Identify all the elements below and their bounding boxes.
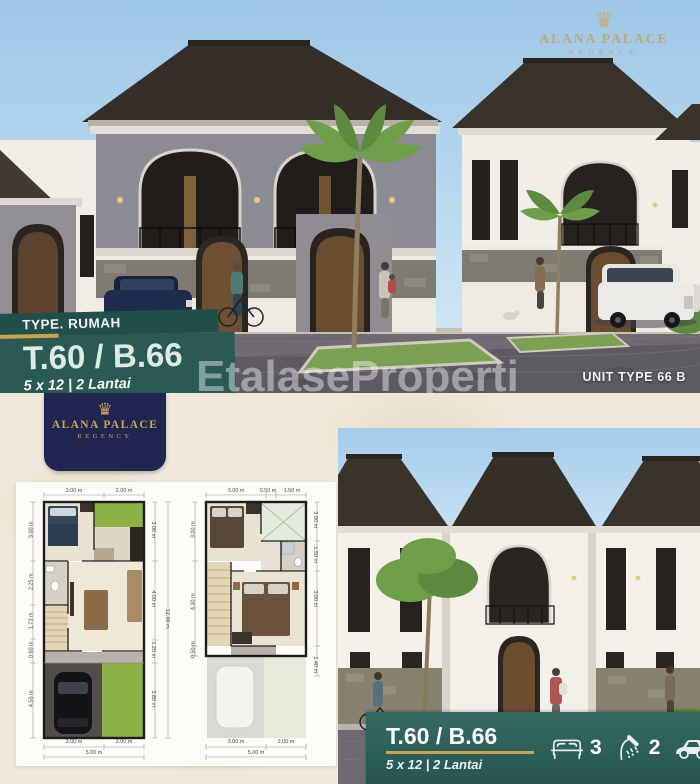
bedrooms-count: 3 [590,736,602,760]
gold-accent-line [386,751,534,754]
house-far-left [0,140,100,332]
dim-label: 3.00 m [62,740,86,746]
dim-label: 3.00 m [224,489,248,495]
dim-label: 0.60 m [29,638,35,662]
bed-icon [550,734,584,762]
balcony-arch [488,546,550,624]
crown-icon: ♛ [524,10,684,31]
dim-label: 3.00 m [311,587,317,611]
dim-label: 3.00 m [191,518,197,542]
floor-plan-upper: 3.00 m 0.50 m 1.50 m 3.00 m 4.30 m 0.50 … [186,486,336,762]
dim-label: 4.50 m [29,687,35,711]
unit-type-label: UNIT TYPE 66 B [582,370,686,384]
brand-logo-top: ♛ ALANA PALACE REGENCY [524,10,684,57]
dim-label: 3.80 m [149,687,155,711]
dim-label: 2.25 m [29,570,35,594]
bottom-bar-text: T.60 / B.66 5 x 12 | 2 Lantai [386,724,536,772]
dim-label: 3.00 m [62,489,86,495]
dim-label: 4.30 m [191,590,197,614]
shower-icon [615,734,643,762]
brand-badge: ♛ ALANA PALACE REGENCY [44,393,166,471]
dim-label: 3.00 m [149,518,155,542]
dim-label: 2.00 m [112,740,136,746]
dim-label: 5.00 m [82,751,106,757]
dim-label: 1.40 m [311,653,317,677]
feature-list: 3 2 [550,734,700,762]
floor-plan-card: 3.00 m 2.00 m 3.00 m 2.25 m 1.73 m 0.60 … [16,482,336,766]
bathrooms-feature: 2 [615,734,661,762]
dim-label: 0.50 m [256,489,280,495]
dim-label: 4.00 m [149,587,155,611]
bathrooms-count: 2 [649,736,661,760]
dim-label: 2.00 m [311,508,317,532]
watermark: EtalaseProperti [196,352,519,393]
bottom-info-bar: T.60 / B.66 5 x 12 | 2 Lantai 3 [366,712,700,784]
lower-section: ♛ ALANA PALACE REGENCY [0,393,700,784]
brand-subtitle: REGENCY [44,433,166,441]
property-flyer: ♛ ALANA PALACE REGENCY TYPE. RUMAH T.60 … [0,0,700,784]
brand-subtitle: REGENCY [524,48,684,57]
dim-label: 1.73 m [29,609,35,633]
floor-plan-ground: 3.00 m 2.00 m 3.00 m 2.25 m 1.73 m 0.60 … [24,486,174,762]
dim-label: 1.20 m [149,638,155,662]
dim-label: 5.00 m [244,751,268,757]
brand-name: ALANA PALACE [44,418,166,433]
dim-label: 2.00 m [274,740,298,746]
crown-icon: ♛ [44,401,166,418]
dim-label: 3.00 m [224,740,248,746]
bottom-dimensions: 5 x 12 | 2 Lantai [386,757,536,772]
dim-label: 0.50 m [191,638,197,662]
bottom-title: T.60 / B.66 [386,724,536,748]
dim-label: 12.00 m [163,607,169,631]
bottom-render-photo: T.60 / B.66 5 x 12 | 2 Lantai 3 [338,428,700,784]
carport-feature: 1 [673,735,700,761]
brand-name: ALANA PALACE [524,31,684,48]
dim-label: 1.50 m [280,489,304,495]
ghost-ground-floor [207,656,306,738]
bedrooms-feature: 3 [550,734,602,762]
dim-label: 3.00 m [29,518,35,542]
dim-label: 2.00 m [112,489,136,495]
roofs [338,452,700,526]
dim-label: 1.50 m [311,543,317,567]
top-render-photo: ♛ ALANA PALACE REGENCY TYPE. RUMAH T.60 … [0,0,700,393]
car-icon [673,735,700,761]
